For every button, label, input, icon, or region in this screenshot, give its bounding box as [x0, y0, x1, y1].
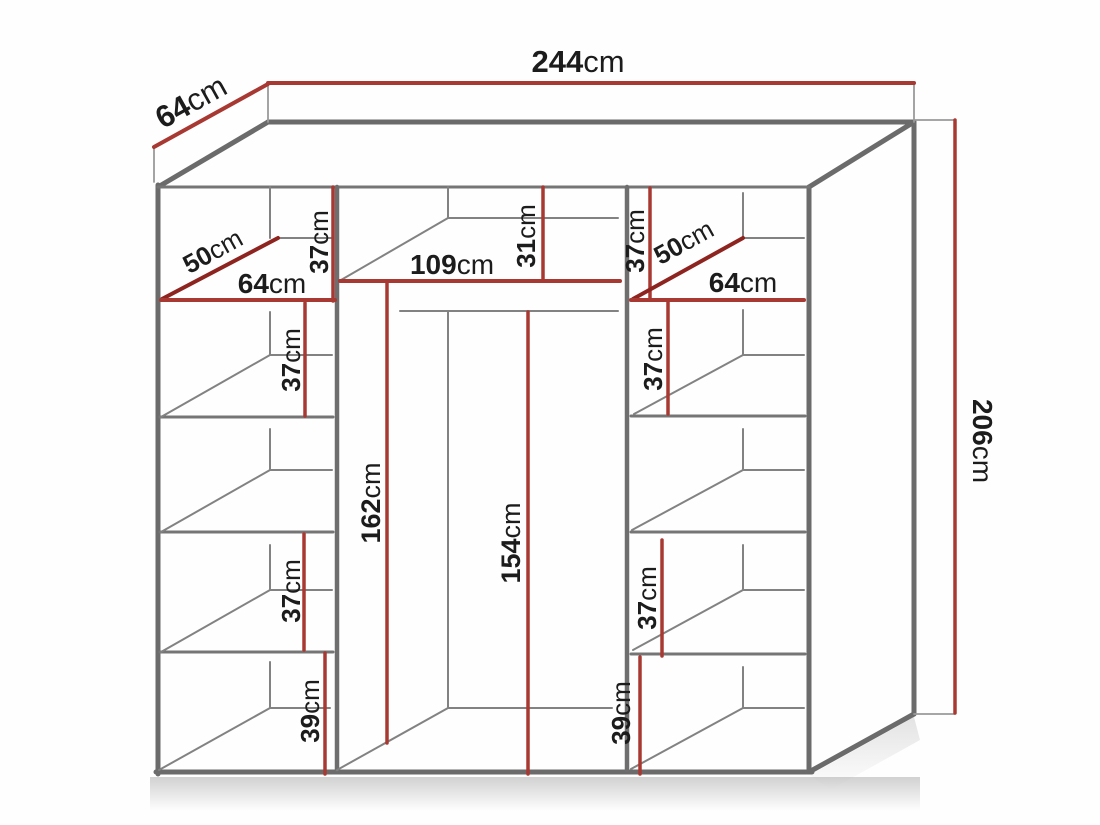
dim-label-middle-left-height: 162cm	[356, 462, 386, 543]
dim-label-right-shelf-depth: 50cm	[649, 214, 719, 271]
dim-label-middle-rail-height: 154cm	[496, 502, 526, 583]
dim-label-left-top-gap: 37cm	[304, 210, 334, 274]
dim-label-right-bottom-gap: 39cm	[606, 681, 636, 745]
dim-label-right-shelf-width: 64cm	[709, 267, 777, 298]
wardrobe-diagram: 244cm 64cm 206cm 37cm 50cm 64cm 37cm 37c…	[0, 0, 1100, 825]
dim-label-left-gap2: 37cm	[276, 328, 306, 392]
dim-label-right-gap2: 37cm	[638, 327, 668, 391]
dim-label-height: 206cm	[967, 399, 998, 483]
dim-label-right-top-gap: 37cm	[620, 209, 650, 273]
dim-label-width: 244cm	[531, 44, 624, 79]
dim-label-middle-shelf-width: 109cm	[410, 249, 494, 280]
dim-label-middle-top-gap: 31cm	[511, 204, 541, 268]
dimension-ticks	[154, 84, 955, 714]
dim-label-left-gap3: 37cm	[276, 559, 306, 623]
dim-label-left-shelf-width: 64cm	[238, 268, 306, 299]
floor-shadow	[150, 777, 920, 811]
dim-label-left-bottom-gap: 39cm	[295, 679, 325, 743]
diagram-svg: 244cm 64cm 206cm 37cm 50cm 64cm 37cm 37c…	[0, 0, 1100, 825]
dim-label-right-gap3: 37cm	[632, 566, 662, 630]
